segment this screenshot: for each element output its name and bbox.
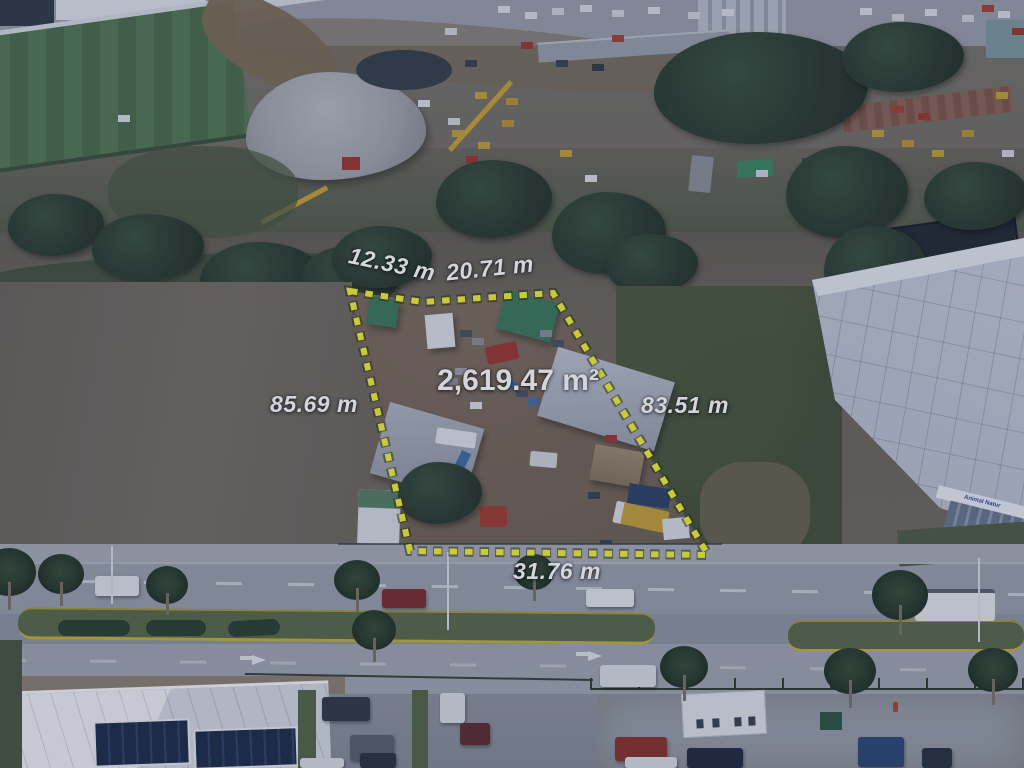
grass-strip bbox=[298, 690, 316, 768]
grass-strip bbox=[412, 690, 428, 768]
parked-car bbox=[922, 748, 952, 768]
parked-car bbox=[322, 697, 370, 721]
green-roof-cabin bbox=[357, 489, 401, 544]
road-arrow bbox=[252, 655, 266, 665]
parked-car bbox=[858, 737, 904, 767]
white-truck bbox=[662, 517, 690, 540]
dark-red-car bbox=[382, 589, 426, 608]
white-shed bbox=[425, 313, 456, 349]
white-car bbox=[529, 451, 557, 468]
light-pole bbox=[447, 552, 449, 630]
palm-tree bbox=[968, 648, 1018, 692]
palm-tree bbox=[38, 554, 84, 594]
palm-tree bbox=[146, 566, 188, 604]
parked-car bbox=[440, 693, 465, 723]
light-pole bbox=[111, 546, 113, 604]
area-label: 2,619.47 m² bbox=[420, 364, 616, 398]
grass-strip bbox=[0, 640, 22, 768]
parked-car bbox=[360, 753, 396, 768]
white-pickup-road bbox=[600, 665, 656, 687]
measurement-label-bottom: 31.76 m bbox=[498, 558, 616, 585]
palm-tree bbox=[824, 648, 876, 694]
white-suv bbox=[95, 576, 139, 596]
teal-roof-shed bbox=[986, 20, 1024, 58]
palm-tree bbox=[334, 560, 380, 600]
dark-gravel-pile bbox=[356, 50, 452, 90]
light-pole bbox=[978, 558, 980, 642]
measurement-label-left: 85.69 m bbox=[258, 391, 370, 418]
dump-truck bbox=[688, 155, 714, 193]
parked-car bbox=[625, 757, 677, 768]
median-hedge bbox=[146, 620, 206, 636]
aerial-photo-scene: Animal Natur bbox=[0, 0, 1024, 768]
road-median bbox=[788, 620, 1024, 652]
median-hedge bbox=[228, 619, 281, 638]
palm-tree bbox=[872, 570, 928, 620]
palm-tree bbox=[660, 646, 708, 688]
green-truck bbox=[737, 159, 774, 178]
yard-clutter bbox=[0, 0, 12, 7]
measurement-label-right: 83.51 m bbox=[626, 392, 744, 419]
parked-car bbox=[460, 723, 490, 745]
portable-cabin bbox=[681, 690, 767, 738]
palm-tree bbox=[352, 610, 396, 650]
road-arrow bbox=[576, 652, 588, 656]
fence bbox=[590, 688, 1024, 690]
red-van bbox=[480, 506, 507, 527]
solar-panels bbox=[95, 720, 188, 765]
vacant-dirt-field bbox=[0, 282, 352, 562]
solar-panels bbox=[195, 728, 296, 767]
road-arrow bbox=[588, 651, 602, 661]
person bbox=[893, 702, 898, 712]
parked-car bbox=[300, 758, 344, 768]
green-dumpster bbox=[820, 712, 842, 730]
white-van bbox=[586, 589, 634, 607]
parked-car bbox=[687, 748, 743, 768]
plot-fence bbox=[338, 543, 722, 545]
median-hedge bbox=[58, 620, 130, 636]
tree bbox=[924, 162, 1024, 230]
road-arrow bbox=[240, 656, 252, 660]
green-container bbox=[366, 296, 400, 328]
